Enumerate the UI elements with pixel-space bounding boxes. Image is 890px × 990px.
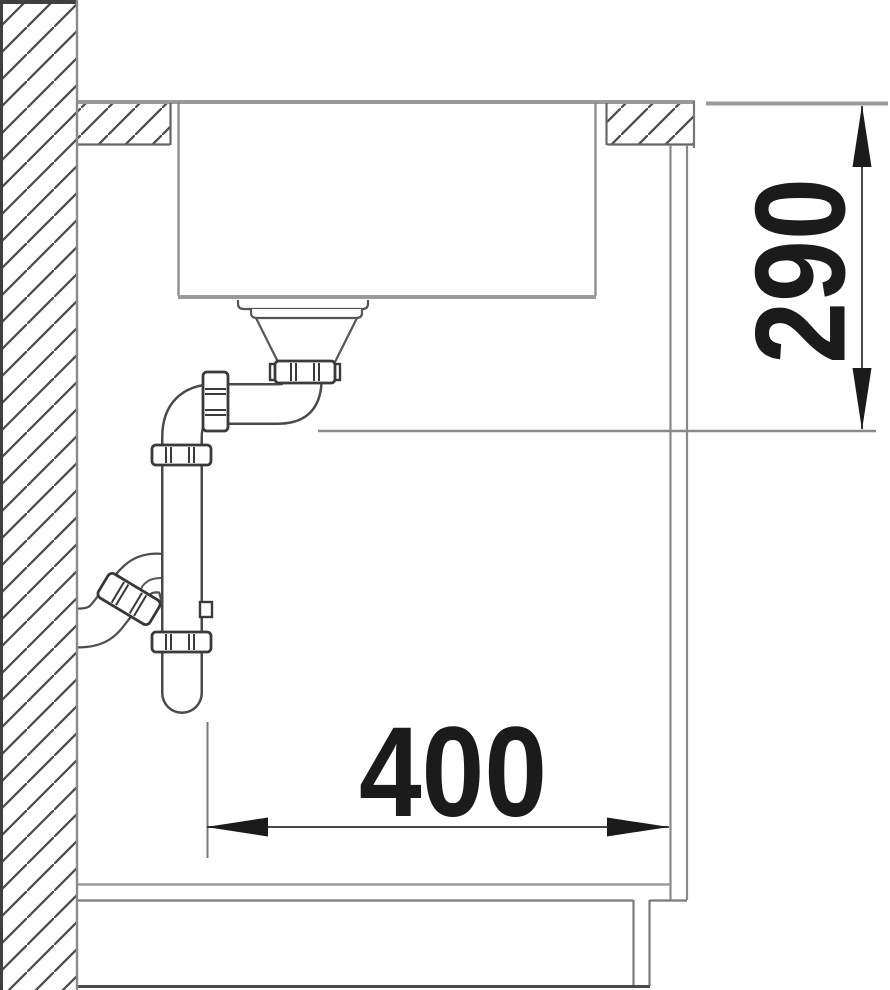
technical-drawing-page: 290 400 (0, 0, 890, 990)
dimension-horizontal-400: 400 (206, 700, 669, 858)
elbow-nut-body (203, 372, 228, 431)
wall-section (0, 0, 78, 990)
drain-fittings (96, 300, 368, 652)
strainer-cone (256, 318, 357, 362)
strainer-flange-upper (238, 300, 368, 309)
arrow-left-icon (206, 818, 268, 837)
lower-nut-body (152, 632, 211, 652)
worktop-hatch-left (78, 103, 170, 144)
lower-compression-nut (152, 632, 211, 652)
worktop-hatch-right (607, 103, 694, 144)
worktop (78, 101, 695, 148)
arrow-up-icon (853, 105, 872, 167)
sink-basin (178, 102, 596, 297)
pipe-side-stub (200, 602, 212, 617)
arrow-down-icon (853, 368, 872, 430)
wall-hatching (2, 3, 77, 990)
dimension-vertical-290: 290 (318, 104, 888, 432)
strainer-flange-lower (251, 309, 362, 318)
drain-union-nut (270, 361, 340, 383)
dimension-label-vertical: 290 (730, 178, 873, 364)
elbow-union-nut (203, 372, 228, 431)
arrow-right-icon (607, 818, 669, 837)
drain-nut-body (275, 361, 335, 383)
sink-section-drawing: 290 400 (0, 0, 890, 990)
upper-nut-body (152, 445, 211, 465)
upper-compression-nut (152, 445, 211, 465)
dimension-label-horizontal: 400 (359, 700, 547, 843)
